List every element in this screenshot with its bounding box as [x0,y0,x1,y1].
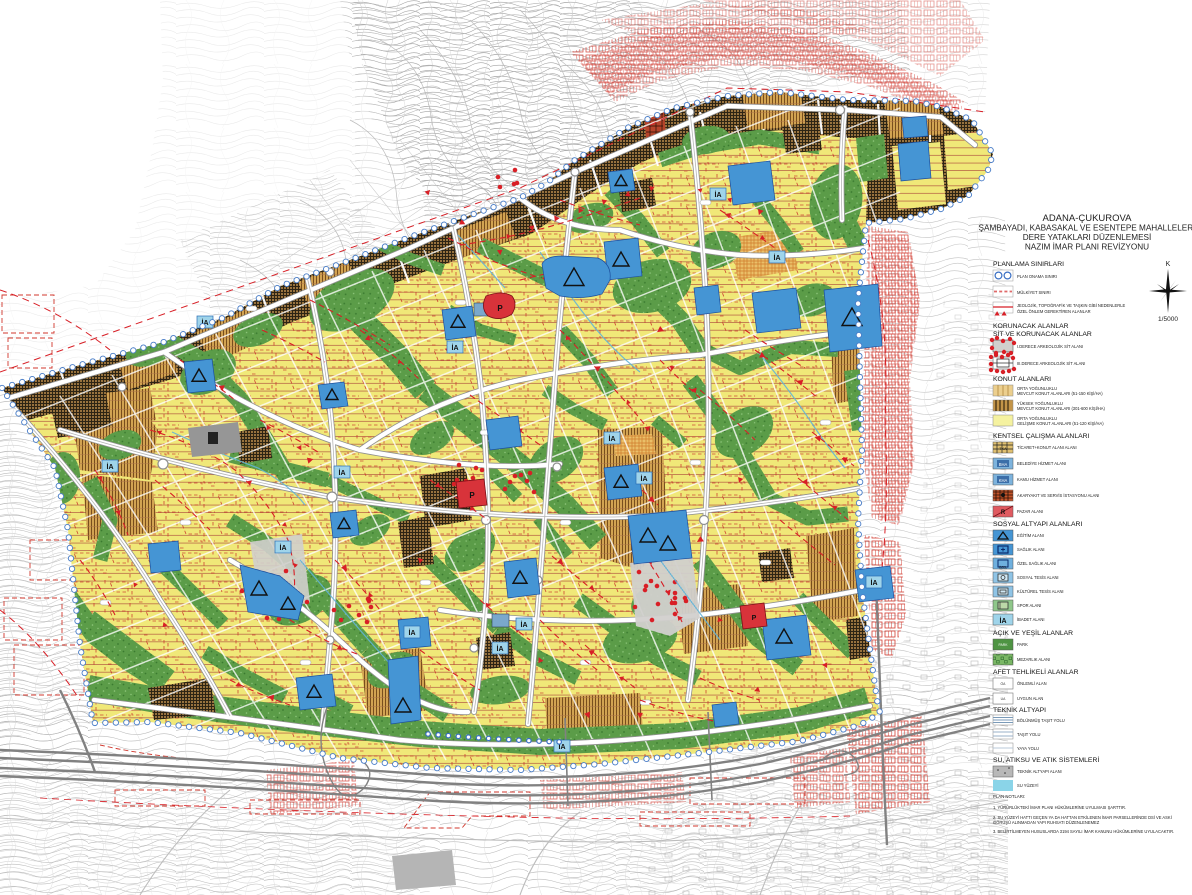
svg-text:PLANLAMA SINIRLARI: PLANLAMA SINIRLARI [993,261,1064,268]
svg-text:BÖLÜNMÜŞ TAŞIT YOLU: BÖLÜNMÜŞ TAŞIT YOLU [1017,718,1065,723]
svg-text:GELİŞME KONUT ALANLARI (51-120: GELİŞME KONUT ALANLARI (51-120 KİŞİ/HA) [1017,421,1104,426]
svg-text:NAZIM İMAR PLANI REVİZYONU: NAZIM İMAR PLANI REVİZYONU [1025,242,1149,252]
svg-text:İA: İA [521,621,528,629]
svg-text:MEVCUT KONUT ALANLARI (51-150: MEVCUT KONUT ALANLARI (51-150 KİŞİ/HA) [1017,391,1103,396]
svg-text:JEOLOJİK, TOPOĞRAFİK VE TAŞKIN: JEOLOJİK, TOPOĞRAFİK VE TAŞKIN GİBİ NEDE… [1017,303,1125,308]
svg-text:MÜLKİYET SINIRI: MÜLKİYET SINIRI [1017,290,1051,295]
svg-text:İBADET ALANI: İBADET ALANI [1017,617,1044,622]
svg-text:TKA: TKA [999,447,1007,451]
svg-text:UA: UA [1001,697,1006,701]
svg-text:KAMU HİZMET ALANI: KAMU HİZMET ALANI [1017,477,1058,482]
svg-text:GÖRÜŞÜ ALINMADAN YAPI RUHSATI: GÖRÜŞÜ ALINMADAN YAPI RUHSATI DÜZENLENEM… [993,820,1100,825]
svg-text:ADANA-ÇUKUROVA: ADANA-ÇUKUROVA [1042,213,1132,224]
svg-text:PAZAR ALANI: PAZAR ALANI [1017,509,1043,514]
svg-text:AÇIK VE YEŞİL ALANLAR: AÇIK VE YEŞİL ALANLAR [993,628,1073,637]
svg-text:İA: İA [715,191,722,199]
svg-text:TEKNİK ALTYAPI ALANI: TEKNİK ALTYAPI ALANI [1017,769,1062,774]
svg-text:SPOR ALANI: SPOR ALANI [1017,603,1041,608]
svg-text:UYGUN ALAN: UYGUN ALAN [1017,696,1043,701]
svg-text:İA: İA [497,645,504,653]
svg-text:1/5000: 1/5000 [1158,316,1178,323]
svg-text:KORUNACAK ALANLAR: KORUNACAK ALANLAR [993,323,1069,330]
svg-text:PARK: PARK [999,643,1009,647]
svg-text:KÜLTÜREL TESİS ALANI: KÜLTÜREL TESİS ALANI [1017,589,1064,594]
svg-text:İA: İA [107,463,114,471]
svg-text:SOSYAL ALTYAPI ALANLARI: SOSYAL ALTYAPI ALANLARI [993,521,1082,528]
svg-text:I.DERECE ARKEOLOJİK SİT ALANI: I.DERECE ARKEOLOJİK SİT ALANI [1017,344,1083,349]
svg-text:TEKNİK ALTYAPI: TEKNİK ALTYAPI [993,705,1046,714]
svg-text:SOSYAL TESİS ALANI: SOSYAL TESİS ALANI [1017,575,1059,580]
svg-text:PLAN ONAMA SINIRI: PLAN ONAMA SINIRI [1017,274,1057,279]
svg-text:SAĞLIK ALANI: SAĞLIK ALANI [1017,547,1045,552]
svg-text:İA: İA [609,435,616,443]
svg-text:İA: İA [1000,617,1007,625]
svg-text:İA: İA [774,254,781,262]
svg-text:SİT VE KORUNACAK ALANLAR: SİT VE KORUNACAK ALANLAR [993,329,1092,338]
svg-text:PLAN NOTLARI:: PLAN NOTLARI: [993,794,1025,799]
svg-text:KHA: KHA [999,478,1008,483]
svg-text:ÖNLEMLİ ALAN: ÖNLEMLİ ALAN [1017,681,1047,686]
svg-text:BHA: BHA [999,462,1008,467]
svg-text:R: R [1001,510,1006,516]
svg-text:KONUT ALANLARI: KONUT ALANLARI [993,376,1051,383]
svg-text:AFET TEHLİKELİ ALANLAR: AFET TEHLİKELİ ALANLAR [993,667,1079,676]
svg-text:İA: İA [641,475,648,483]
svg-text:MEVCUT KONUT ALANLARI (301-600: MEVCUT KONUT ALANLARI (301-600 KİŞİ/HA) [1017,406,1106,411]
svg-text:ÖZEL: ÖZEL [999,566,1008,570]
svg-text:İA: İA [280,544,287,552]
svg-text:SU, ATIKSU VE ATIK SİSTEMLERİ: SU, ATIKSU VE ATIK SİSTEMLERİ [993,755,1099,764]
svg-text:P: P [497,304,503,313]
svg-text:K: K [1166,261,1171,268]
svg-text:PARK: PARK [1017,642,1028,647]
svg-text:DERE YATAKLARI DÜZENLEMESİ: DERE YATAKLARI DÜZENLEMESİ [1023,232,1152,242]
svg-text:MEZARLIK ALANI: MEZARLIK ALANI [1017,657,1050,662]
svg-text:İA: İA [452,344,459,352]
svg-text:ŞAMBAYADI, KABASAKAL VE ESENTE: ŞAMBAYADI, KABASAKAL VE ESENTEPE MAHALLE… [979,223,1192,233]
svg-text:BELEDİYE HİZMET ALANI: BELEDİYE HİZMET ALANI [1017,461,1066,466]
svg-text:SU YÜZEYİ: SU YÜZEYİ [1017,783,1039,788]
svg-text:İA: İA [409,629,416,637]
svg-text:AKARYAKIT VE SERVİS İSTASYONU: AKARYAKIT VE SERVİS İSTASYONU ALANI [1017,493,1099,498]
svg-text:İA: İA [339,469,346,477]
svg-text:İA: İA [871,579,878,587]
svg-text:TİCARET+KONUT ALANI ALANI: TİCARET+KONUT ALANI ALANI [1017,445,1077,450]
svg-text:3. BELİRTİLMEYEN HUSUSLARDA 31: 3. BELİRTİLMEYEN HUSUSLARDA 3194 SAYILI … [993,829,1174,834]
svg-text:KENTSEL ÇALIŞMA ALANLARI: KENTSEL ÇALIŞMA ALANLARI [993,433,1090,440]
svg-text:P: P [752,615,757,622]
svg-text:EĞİTİM ALANI: EĞİTİM ALANI [1017,533,1044,538]
svg-text:TAŞIT YOLU: TAŞIT YOLU [1017,732,1040,737]
svg-text:P: P [469,491,475,500]
svg-text:ÖZEL ÖNLEM GEREKTİREN ALANLAR: ÖZEL ÖNLEM GEREKTİREN ALANLAR [1017,309,1091,314]
svg-text:ÖZEL SAĞLIK ALANI: ÖZEL SAĞLIK ALANI [1017,561,1056,566]
svg-text:YAYA YOLU: YAYA YOLU [1017,746,1039,751]
svg-text:1. YÜRÜRLÜKTEKİ İMAR PLANI HÜK: 1. YÜRÜRLÜKTEKİ İMAR PLANI HÜKÜMLERİNE U… [993,805,1126,810]
svg-text:ÖA: ÖA [1001,682,1007,686]
svg-text:III.DERECE ARKEOLOJİK SİT ALAN: III.DERECE ARKEOLOJİK SİT ALANI [1017,361,1085,366]
